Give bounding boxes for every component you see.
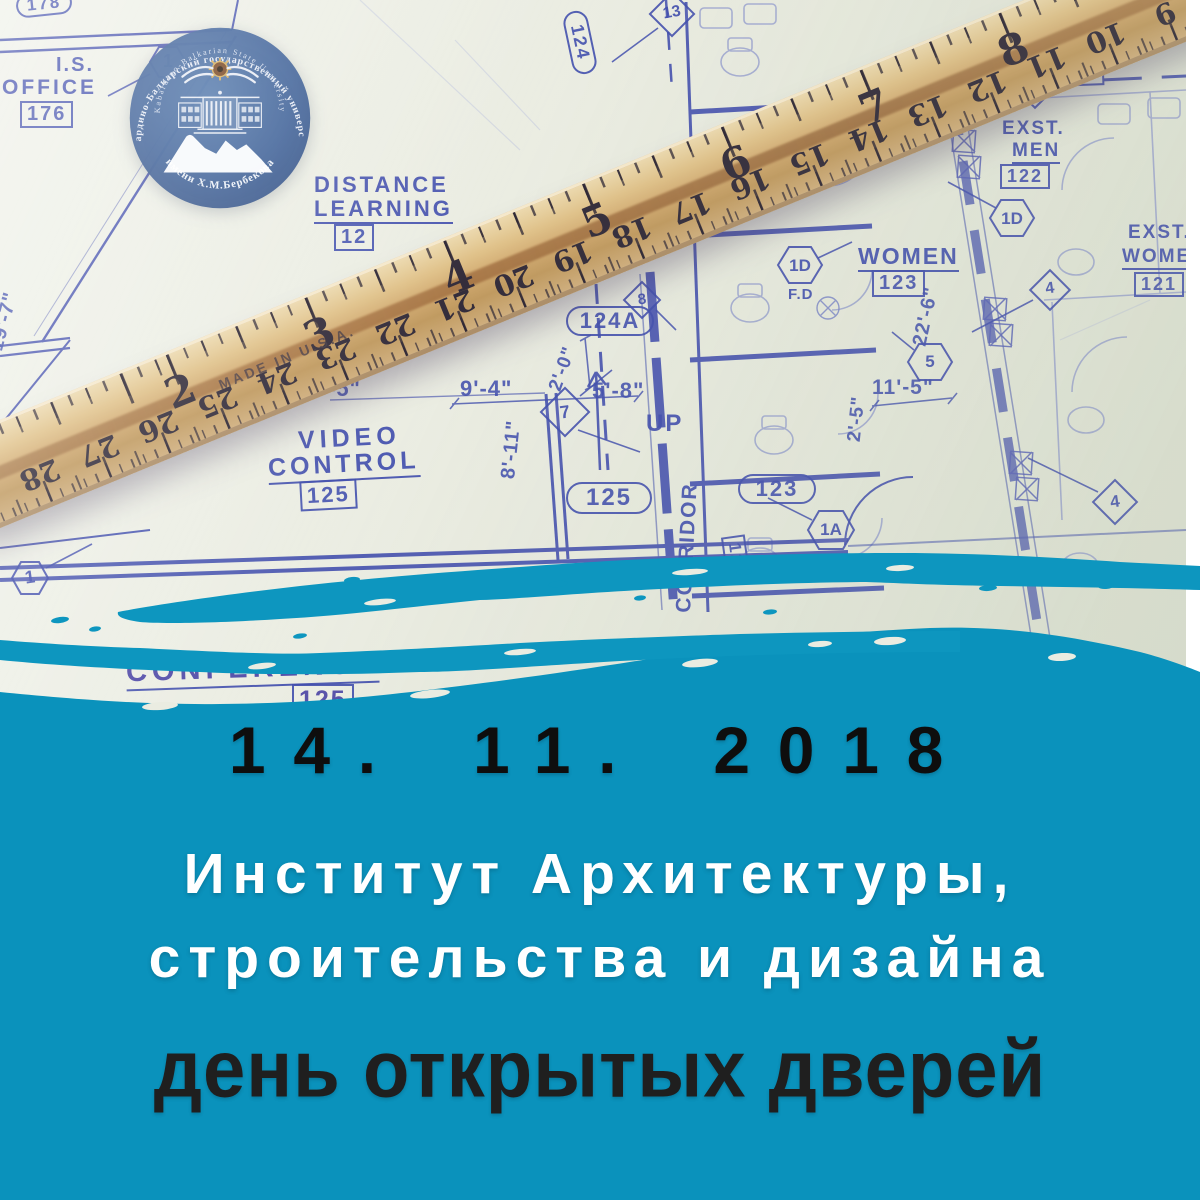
diamond-tag-4c: 4 xyxy=(1100,490,1131,514)
door-tag-125: 125 xyxy=(566,482,652,514)
university-logo: Кабардино-Балкарский государственный уни… xyxy=(126,24,314,212)
room-number-12: 12 xyxy=(334,224,374,251)
room-label-exst-men: EXST. xyxy=(1002,118,1065,140)
diamond-tag-4b: 4 xyxy=(1036,278,1064,299)
hex-tag-1d-b: 1D xyxy=(997,209,1027,229)
room-label-is: I.S. xyxy=(56,54,94,77)
room-label-men: MEN xyxy=(1012,140,1060,164)
dim-5-8: 5'-8" xyxy=(592,378,644,404)
label-up: UP xyxy=(646,410,683,438)
event-title: день открытых дверей xyxy=(0,1023,1200,1115)
ruler-cm-number: 9 xyxy=(1138,0,1186,38)
dim-11-5: 11'-5" xyxy=(872,376,934,400)
event-date: 14. 11. 2018 xyxy=(0,712,1200,788)
room-number-123: 123 xyxy=(872,270,925,297)
room-number-122: 122 xyxy=(1000,164,1050,189)
hex-tag-5: 5 xyxy=(917,352,943,372)
hex-tag-1d-a: 1D xyxy=(785,256,815,276)
dim-9-4: 9'-4" xyxy=(460,376,512,402)
room-label-learning: LEARNING xyxy=(314,196,453,224)
room-number-121: 121 xyxy=(1134,272,1184,297)
room-label-women-2: WOMEN xyxy=(1122,246,1186,270)
institute-name: Институт Архитектуры, строительства и ди… xyxy=(0,832,1200,1000)
room-label-distance: DISTANCE xyxy=(314,172,449,198)
room-number-125: 125 xyxy=(299,479,357,512)
open-house-poster: I.S. OFFICE 176 178 1 1 19'-7" 14'-8" DI… xyxy=(0,0,1200,1200)
room-label-office: OFFICE xyxy=(2,76,97,100)
diamond-tag-7: 7 xyxy=(550,400,581,425)
room-tag-124a: 124A xyxy=(566,306,654,336)
room-label-exst-women: EXST. xyxy=(1128,222,1186,244)
room-label-women: WOMEN xyxy=(858,243,959,272)
institute-name-line1: Институт Архитектуры, xyxy=(0,832,1200,916)
door-tag-123: 123 xyxy=(738,474,816,504)
room-number-176: 176 xyxy=(20,101,73,128)
label-fd: F.D xyxy=(788,286,814,303)
paint-streak-upper xyxy=(118,553,1200,623)
institute-name-line2: строительства и дизайна xyxy=(0,916,1200,1000)
